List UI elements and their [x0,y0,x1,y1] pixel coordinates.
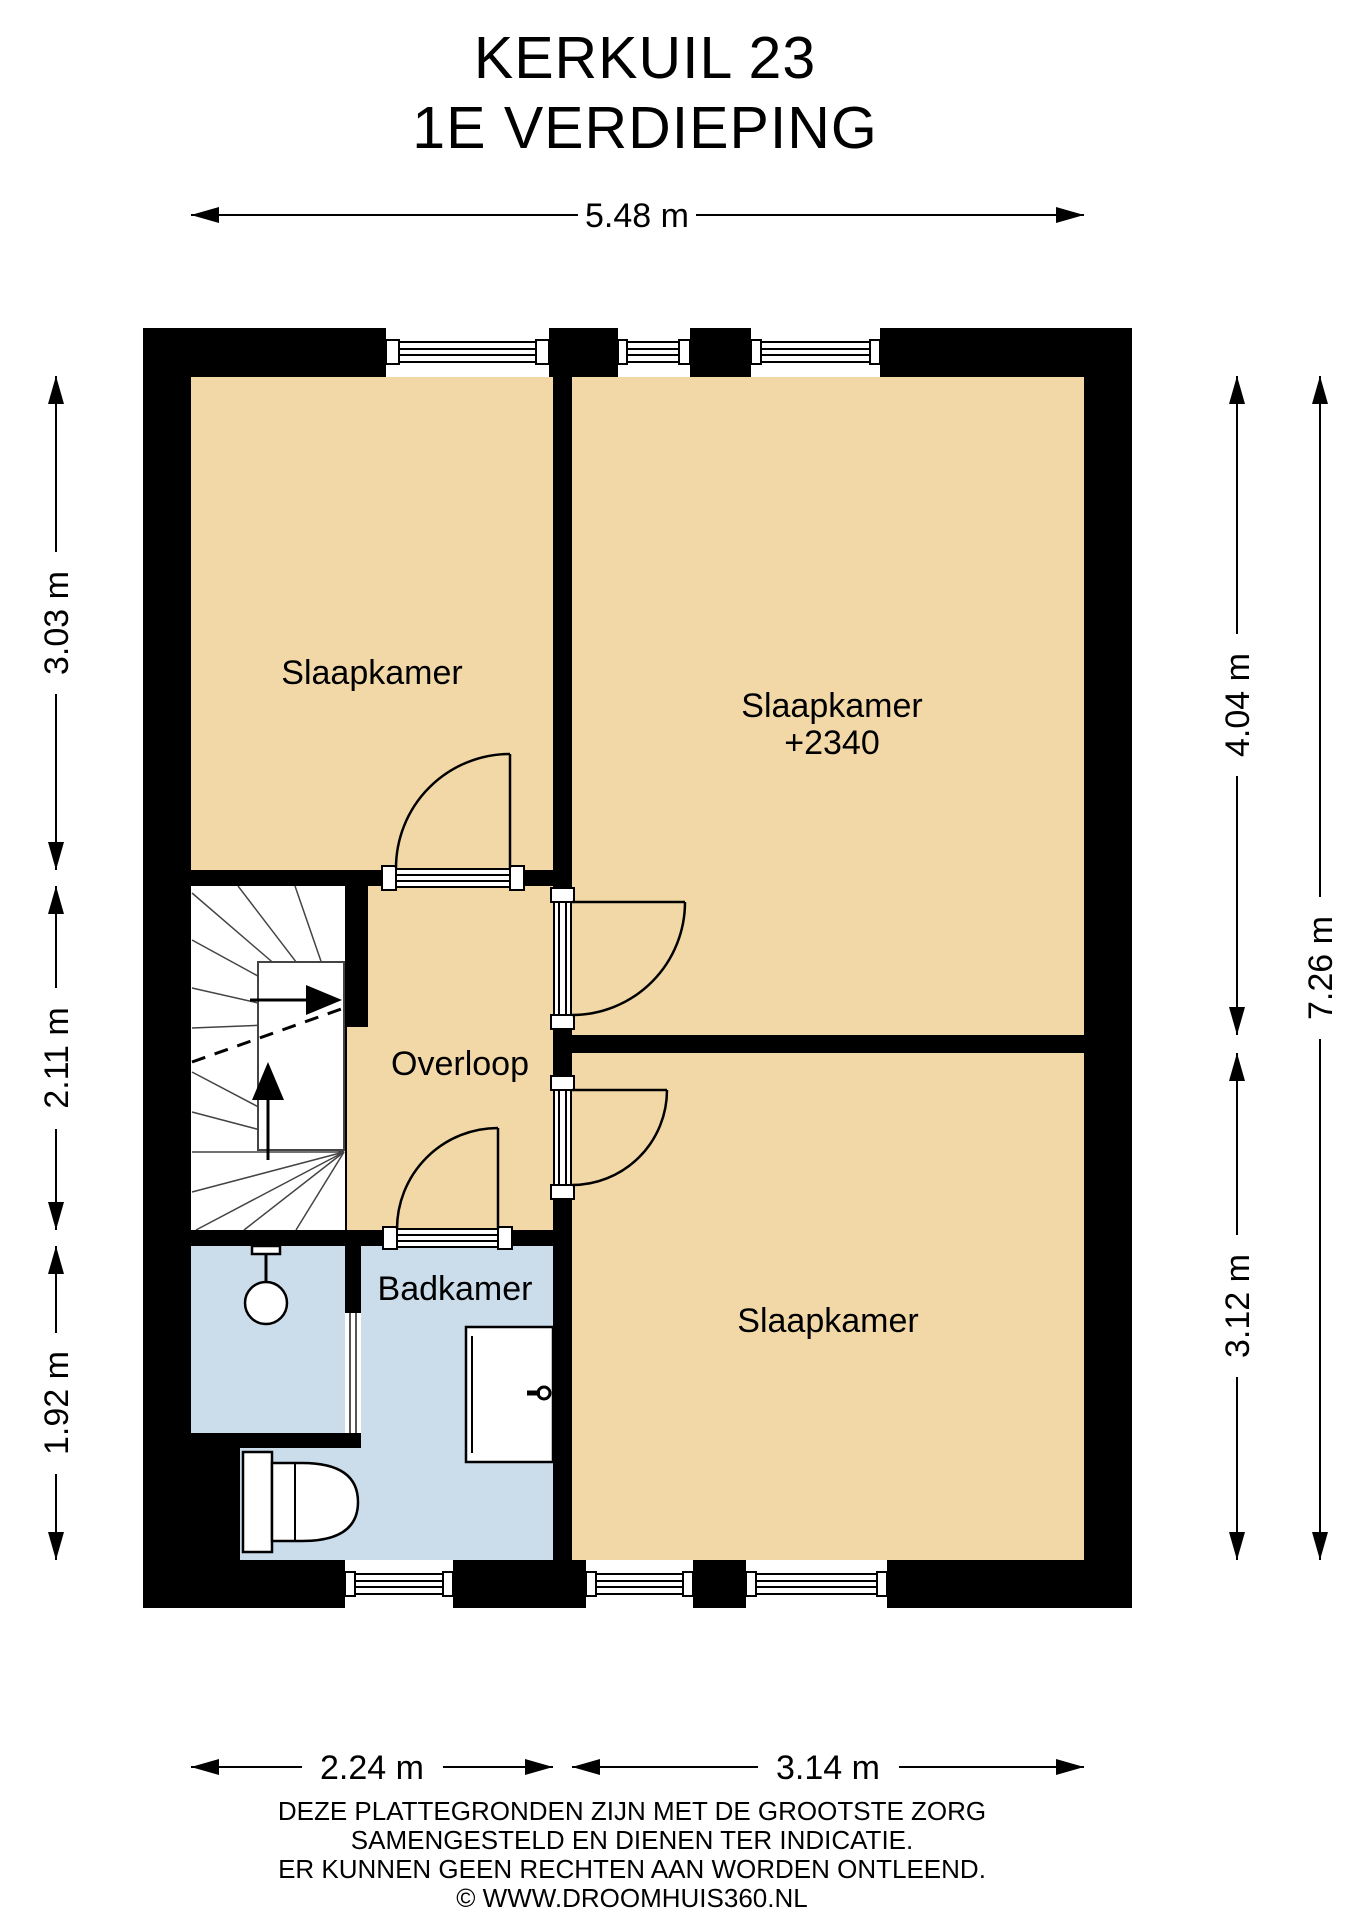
dim-label: 5.48 m [585,197,689,235]
dim-right-upper: 4.04 m [1219,376,1257,1035]
dim-left-middle: 2.11 m [38,886,76,1230]
wall-exterior-left [143,328,191,1608]
wall-bedroom-landing [191,870,382,886]
dim-label: 1.92 m [38,1351,76,1455]
footer-line-1: DEZE PLATTEGRONDEN ZIJN MET DE GROOTSTE … [278,1796,986,1826]
wall-divider-vertical [553,1199,572,1560]
dim-label: 3.14 m [776,1749,880,1787]
page-subtitle: 1E VERDIEPING [412,95,877,161]
footer-copyright: © WWW.DROOMHUIS360.NL [456,1883,807,1913]
wall-exterior-top [690,328,751,377]
wall-bedroom-landing [524,870,553,886]
wall-landing-bathroom [191,1230,383,1246]
dim-width-total: 5.48 m [191,197,1084,235]
window-icon [751,340,880,364]
wall-exterior-bottom [143,1560,345,1608]
dim-label: 2.24 m [320,1749,424,1787]
window-icon [386,340,549,364]
wall-exterior-bottom [887,1560,1132,1608]
dim-label: 3.12 m [1219,1254,1257,1358]
room-label-bedroom-right: Slaapkamer [741,687,922,725]
wall-exterior-right [1084,328,1132,1608]
wall-landing-bathroom [512,1230,553,1246]
wall-exterior-bottom [453,1560,586,1608]
footer-line-2: SAMENGESTELD EN DIENEN TER INDICATIE. [351,1825,913,1855]
window-icon [746,1572,887,1596]
room-label-landing: Overloop [391,1045,529,1083]
wall-between-right-bedrooms [572,1035,1084,1053]
dim-label: 3.03 m [38,571,76,675]
shower-screen [350,1313,356,1433]
window-icon [586,1572,693,1596]
dim-label: 2.11 m [38,1007,76,1108]
dim-right-total: 7.26 m [1302,376,1340,1560]
room-label-bedroom-top-left: Slaapkamer [281,654,462,692]
wall-toilet-block [191,1448,240,1560]
floor-plan: KERKUIL 23 1E VERDIEPING [0,0,1358,1920]
page-title: KERKUIL 23 [474,25,816,91]
window-icon [618,340,690,364]
wall-divider-vertical [553,1029,572,1076]
floor-plan-page: KERKUIL 23 1E VERDIEPING [0,0,1358,1920]
disclaimer: DEZE PLATTEGRONDEN ZIJN MET DE GROOTSTE … [278,1796,986,1913]
room-floor-shower-compartment [191,1246,345,1433]
dim-label: 4.04 m [1219,653,1257,757]
wall-exterior-top [549,328,618,377]
room-label-bathroom: Badkamer [378,1270,533,1308]
dim-right-lower: 3.12 m [1219,1053,1257,1560]
wall-stair-stub [345,886,368,1027]
vanity-unit-icon [466,1327,553,1462]
dim-label: 7.26 m [1302,916,1340,1020]
dim-left-bottom: 1.92 m [38,1246,76,1560]
window-icon [345,1572,453,1596]
wall-divider-vertical [553,377,572,888]
stair-well [258,962,344,1150]
footer-line-3: ER KUNNEN GEEN RECHTEN AAN WORDEN ONTLEE… [278,1854,986,1884]
dim-left-top: 3.03 m [38,376,76,870]
wall-exterior-top [880,328,1132,377]
wall-exterior-bottom [693,1560,746,1608]
dim-bottom-left: 2.24 m [191,1749,553,1787]
wall-exterior-top [143,328,386,377]
room-floor-bedroom-top-left [191,377,553,870]
room-label-bedroom-bottom: Slaapkamer [737,1302,918,1340]
wall-shower-bottom [191,1433,361,1448]
wall-shower-divider [345,1246,361,1313]
dim-bottom-right: 3.14 m [572,1749,1084,1787]
room-label-bedroom-right-ceiling: +2340 [784,724,880,762]
